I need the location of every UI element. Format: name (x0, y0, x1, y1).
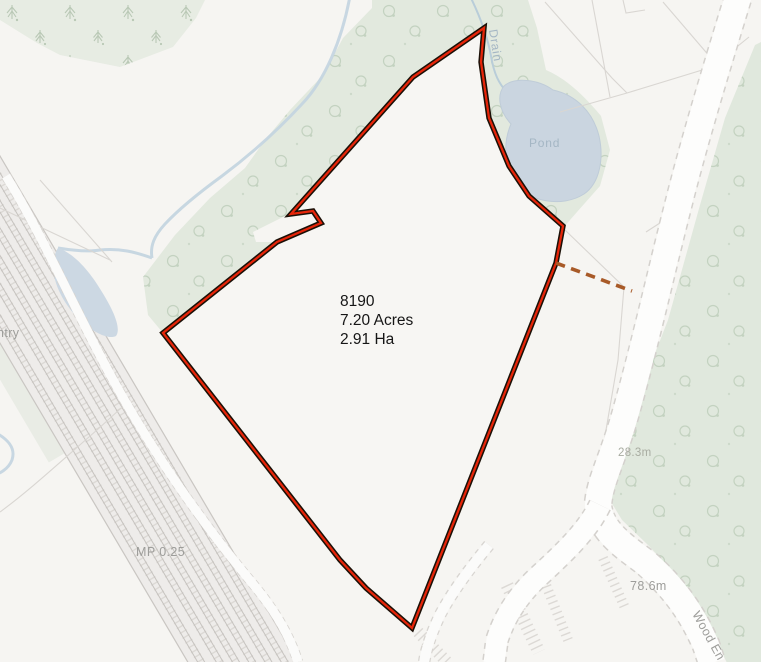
parcel-label-acres: 7.20 Acres (340, 312, 413, 329)
parcel-label-id: 8190 (340, 293, 375, 310)
milepost-label: MP 0.25 (136, 545, 185, 559)
elevation-label-lower: 78.6m (630, 579, 667, 593)
parcel-label-ha: 2.91 Ha (340, 331, 395, 348)
elevation-label-upper: 28.3m (618, 447, 651, 459)
pond-label: Pond (529, 136, 560, 150)
map-canvas[interactable]: 8190 7.20 Acres 2.91 Ha Pond Drain MP 0.… (0, 0, 761, 662)
clipped-place-label: ntry (0, 326, 20, 340)
map-svg[interactable]: 8190 7.20 Acres 2.91 Ha Pond Drain MP 0.… (0, 0, 761, 662)
